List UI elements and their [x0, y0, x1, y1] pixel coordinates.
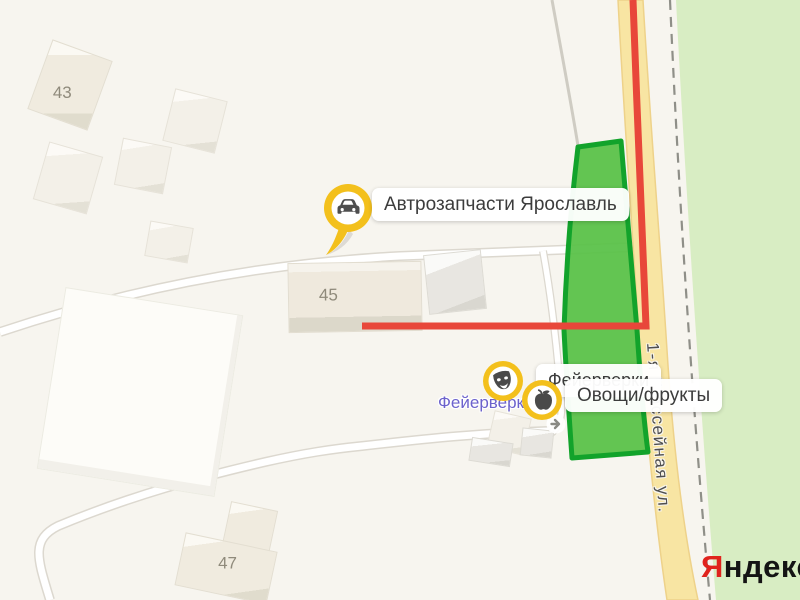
yandex-logo[interactable]: Яндекс	[701, 549, 800, 585]
building-small-3	[114, 138, 172, 195]
building-large-white	[37, 287, 244, 497]
building-gray-1	[423, 249, 487, 315]
building-47-number: 47	[218, 554, 237, 574]
map-canvas[interactable]: 43 45 47 1-я Шоссейная ул. Фейерверки	[0, 0, 800, 600]
yandex-logo-rest: ндекс	[724, 549, 800, 584]
building-45-number: 45	[319, 285, 338, 305]
yandex-logo-ya: Я	[701, 549, 724, 584]
building-45: 45	[287, 261, 422, 333]
produce-label[interactable]: Овощи/фрукты	[565, 379, 722, 412]
auto-parts-label[interactable]: Автрозапчасти Ярославль	[372, 188, 629, 221]
building-43-number: 43	[53, 83, 72, 103]
lot-line	[552, 0, 578, 146]
building-47: 47	[174, 493, 287, 600]
building-small-4	[144, 220, 194, 263]
vegetation-area	[676, 0, 800, 600]
apple-icon[interactable]	[519, 377, 565, 423]
